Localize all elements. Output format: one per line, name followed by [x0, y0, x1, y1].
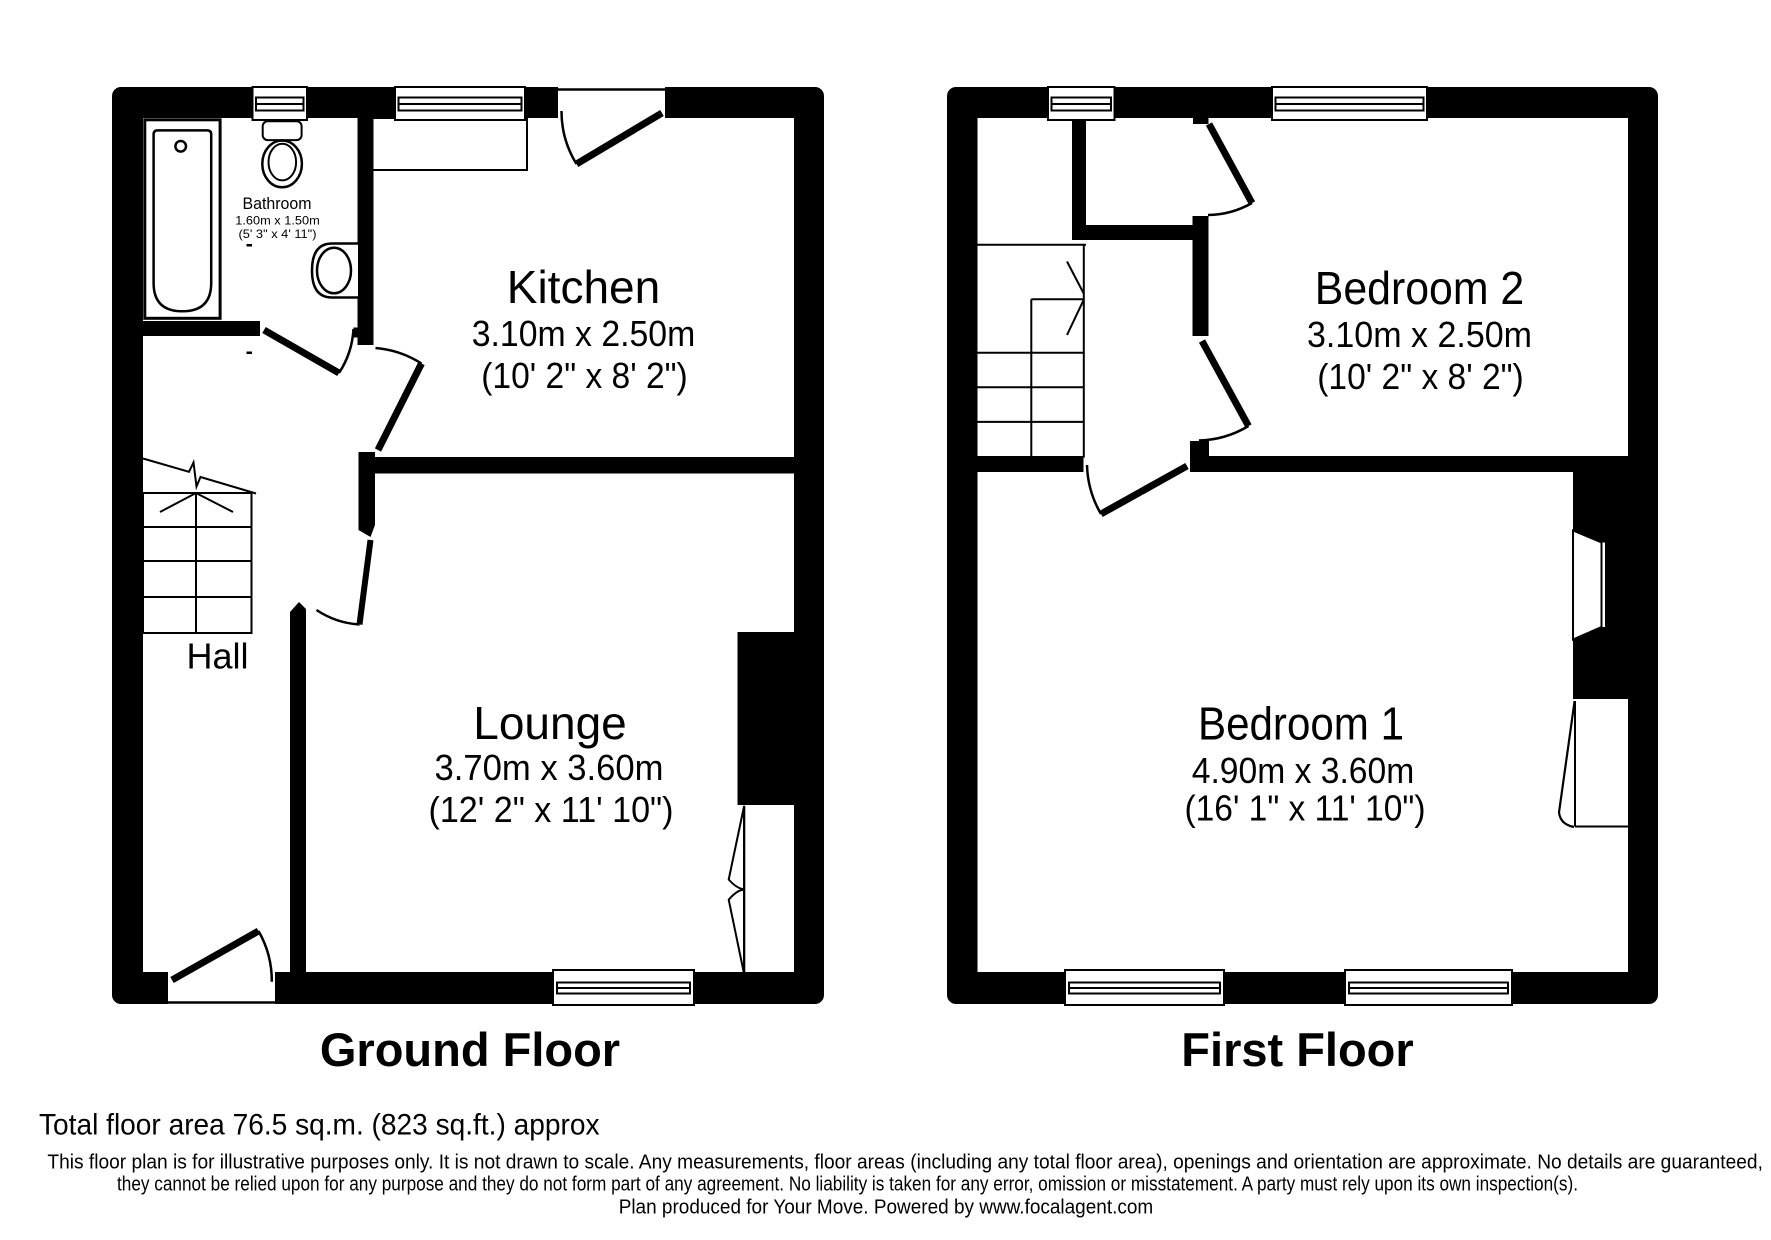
svg-text:Kitchen: Kitchen [507, 261, 660, 313]
svg-text:3.70m x 3.60m: 3.70m x 3.60m [435, 747, 664, 788]
svg-text:(5' 3" x 4' 11"): (5' 3" x 4' 11") [239, 227, 317, 241]
svg-text:they cannot be relied upon for: they cannot be relied upon for any purpo… [117, 1174, 1578, 1196]
svg-text:4.90m x 3.60m: 4.90m x 3.60m [1192, 750, 1415, 791]
svg-text:3.10m x 2.50m: 3.10m x 2.50m [1307, 314, 1532, 355]
svg-text:Total floor area 76.5 sq.m. (8: Total floor area 76.5 sq.m. (823 sq.ft.)… [39, 1109, 600, 1142]
svg-text:Plan produced for Your Move. P: Plan produced for Your Move. Powered by … [619, 1197, 1153, 1219]
svg-text:Bathroom: Bathroom [243, 195, 312, 213]
svg-text:(16' 1" x 11' 10"): (16' 1" x 11' 10") [1185, 788, 1426, 829]
svg-text:First Floor: First Floor [1181, 1023, 1413, 1076]
svg-text:Bedroom 2: Bedroom 2 [1315, 262, 1525, 314]
svg-text:1.60m x 1.50m: 1.60m x 1.50m [235, 214, 320, 228]
svg-text:(10' 2" x 8' 2"): (10' 2" x 8' 2") [1317, 356, 1524, 397]
svg-text:Hall: Hall [186, 636, 248, 677]
svg-text:Bedroom 1: Bedroom 1 [1198, 698, 1404, 750]
svg-text:Ground Floor: Ground Floor [320, 1023, 620, 1076]
svg-text:(10' 2" x 8' 2"): (10' 2" x 8' 2") [481, 355, 688, 396]
svg-text:3.10m x 2.50m: 3.10m x 2.50m [472, 313, 696, 354]
svg-text:Lounge: Lounge [473, 697, 627, 749]
svg-text:This floor plan is for illustr: This floor plan is for illustrative purp… [47, 1151, 1763, 1173]
svg-text:(12' 2" x 11' 10"): (12' 2" x 11' 10") [429, 789, 674, 830]
